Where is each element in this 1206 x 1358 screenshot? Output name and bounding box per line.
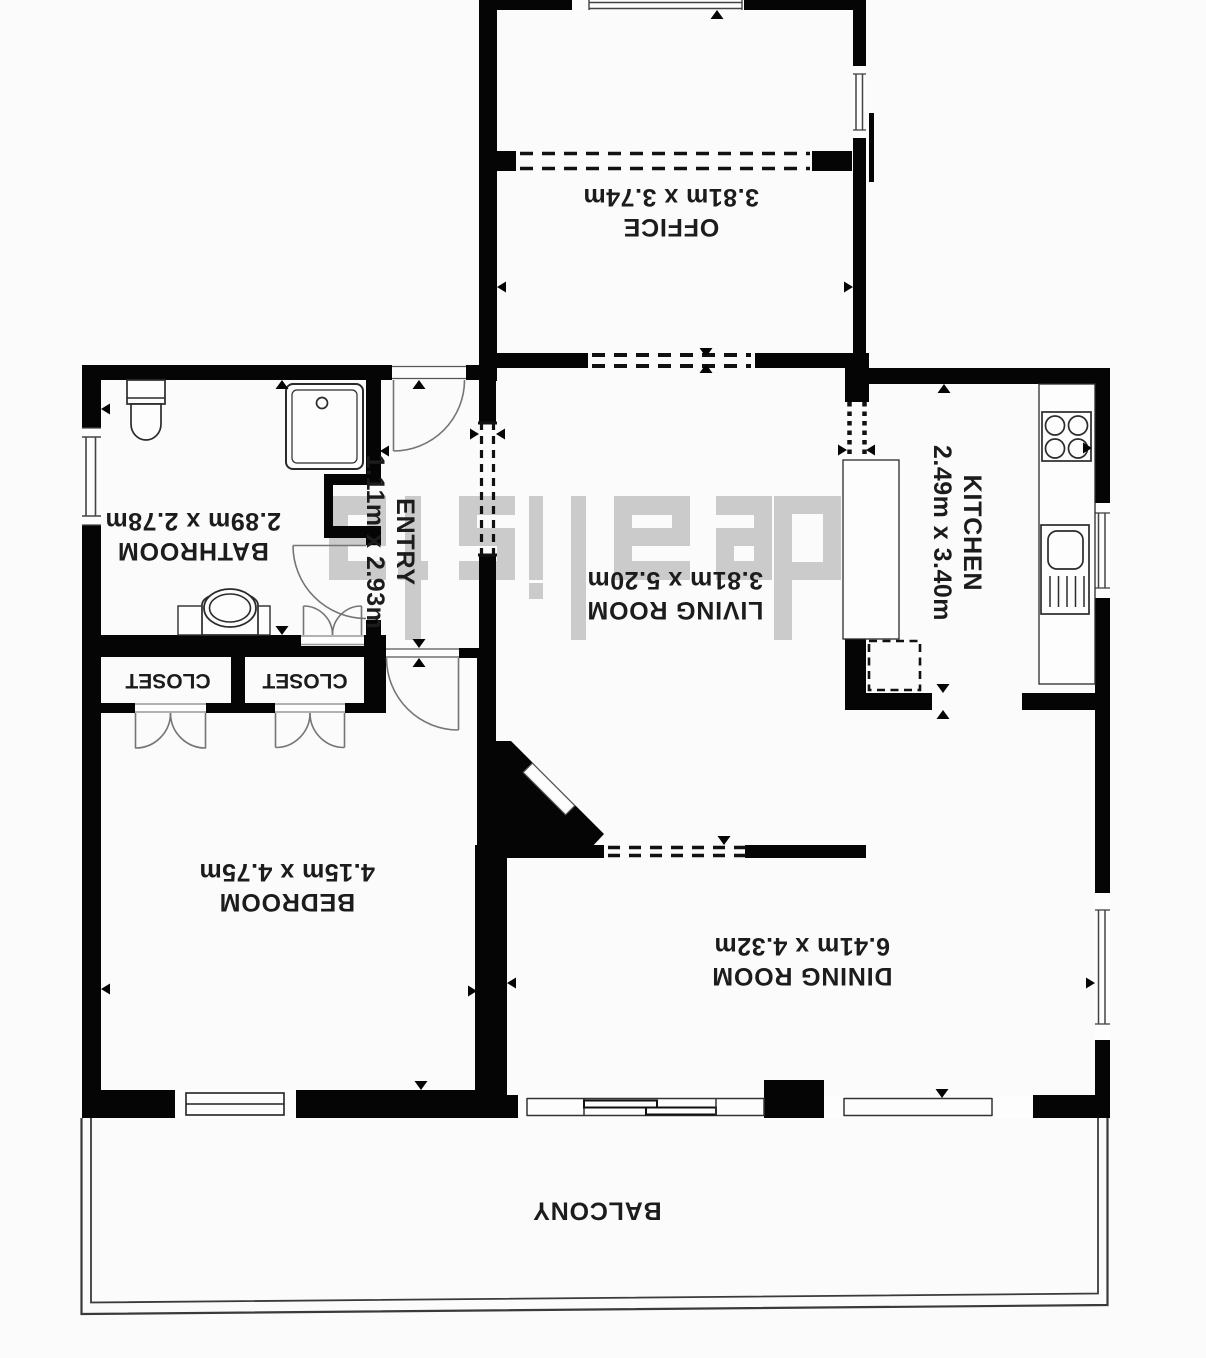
svg-text:KITCHEN: KITCHEN: [958, 475, 986, 592]
svg-text:DINING ROOM: DINING ROOM: [711, 962, 892, 990]
svg-text:CLOSET: CLOSET: [262, 669, 347, 692]
svg-text:OFFICE: OFFICE: [623, 213, 719, 241]
svg-text:LIVING ROOM: LIVING ROOM: [587, 596, 764, 624]
svg-text:BALCONY: BALCONY: [532, 1197, 661, 1225]
svg-text:2.89m x 2.78m: 2.89m x 2.78m: [105, 507, 281, 535]
svg-text:4.15m x 4.75m: 4.15m x 4.75m: [199, 858, 375, 886]
svg-text:BATHROOM: BATHROOM: [117, 537, 269, 565]
svg-text:ENTRY: ENTRY: [391, 498, 419, 586]
svg-text:1.11m x 2.93m: 1.11m x 2.93m: [361, 455, 389, 630]
svg-text:2.49m x 3.40m: 2.49m x 3.40m: [928, 445, 956, 621]
svg-text:6.41m x 4.32m: 6.41m x 4.32m: [714, 932, 890, 960]
svg-text:CLOSET: CLOSET: [125, 669, 210, 692]
svg-text:3.81m x 5.20m: 3.81m x 5.20m: [587, 566, 763, 594]
svg-text:3.81m x 3.74m: 3.81m x 3.74m: [583, 183, 759, 211]
svg-text:BEDROOM: BEDROOM: [219, 888, 355, 916]
